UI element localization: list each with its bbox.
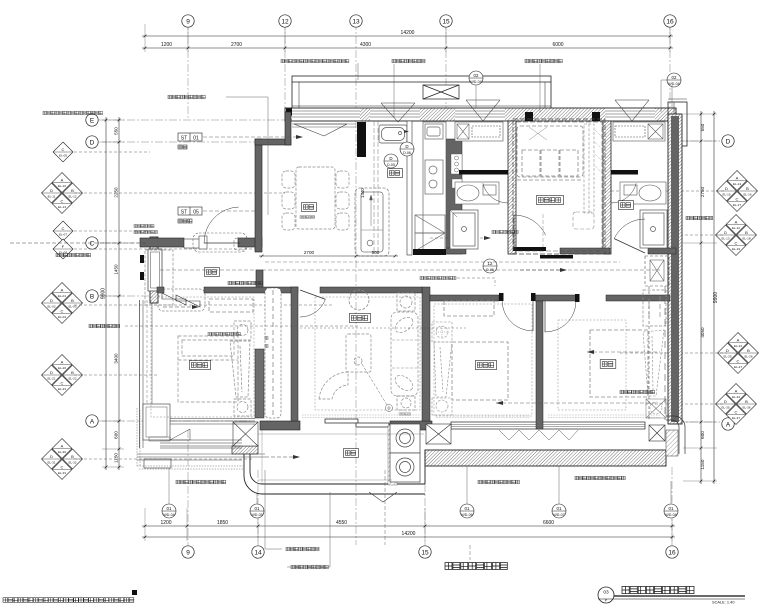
svg-text:4050: 4050 bbox=[700, 327, 705, 338]
svg-text:D: D bbox=[726, 348, 729, 353]
svg-text:01: 01 bbox=[167, 506, 172, 511]
svg-text:13: 13 bbox=[352, 18, 360, 25]
svg-text:EL-35: EL-35 bbox=[721, 405, 729, 409]
svg-text:C: C bbox=[735, 241, 738, 246]
svg-text:6600: 6600 bbox=[543, 520, 554, 526]
svg-text:14: 14 bbox=[254, 549, 262, 556]
svg-text:14200: 14200 bbox=[401, 30, 415, 36]
svg-text:EL-32: EL-32 bbox=[68, 460, 76, 464]
svg-text:C: C bbox=[737, 359, 740, 364]
svg-text:4300: 4300 bbox=[360, 42, 371, 48]
svg-text:EL-01: EL-01 bbox=[58, 294, 66, 298]
svg-text:A: A bbox=[726, 421, 731, 428]
svg-text:1200: 1200 bbox=[161, 42, 172, 48]
svg-text:15: 15 bbox=[421, 549, 429, 556]
svg-text:EL-22: EL-22 bbox=[68, 376, 76, 380]
svg-text:WD-04: WD-04 bbox=[668, 82, 679, 86]
svg-text:A: A bbox=[61, 288, 64, 293]
svg-text:2750: 2750 bbox=[700, 186, 705, 197]
svg-text:EL-34: EL-34 bbox=[732, 395, 740, 399]
svg-text:D: D bbox=[50, 370, 53, 375]
svg-text:550: 550 bbox=[700, 123, 705, 131]
svg-text:WD-04: WD-04 bbox=[163, 513, 174, 517]
svg-text:EL-11: EL-11 bbox=[48, 194, 56, 198]
svg-text:B: B bbox=[71, 370, 74, 375]
svg-text:EL-25: EL-25 bbox=[723, 354, 731, 358]
svg-text:ST: ST bbox=[181, 135, 187, 141]
svg-text:D: D bbox=[726, 138, 731, 145]
svg-text:600: 600 bbox=[700, 431, 705, 439]
svg-text:9: 9 bbox=[186, 18, 190, 25]
svg-text:B: B bbox=[745, 230, 748, 235]
svg-text:C: C bbox=[61, 381, 64, 386]
svg-text:EL-17: EL-17 bbox=[733, 203, 741, 207]
svg-text:EL-33: EL-33 bbox=[58, 471, 66, 475]
svg-text:2700: 2700 bbox=[304, 250, 315, 255]
svg-text:01: 01 bbox=[193, 135, 199, 141]
svg-text:EL-05: EL-05 bbox=[59, 153, 67, 157]
svg-text:01: 01 bbox=[669, 506, 674, 511]
svg-text:D: D bbox=[389, 156, 392, 161]
svg-text:B: B bbox=[90, 293, 94, 300]
svg-text:D: D bbox=[50, 188, 53, 193]
svg-text:EL-16: EL-16 bbox=[743, 192, 751, 196]
svg-text:E: E bbox=[90, 117, 95, 124]
svg-text:EL-19: EL-19 bbox=[732, 247, 740, 251]
svg-text:2250: 2250 bbox=[113, 187, 118, 198]
svg-text:C: C bbox=[61, 465, 64, 470]
svg-text:D: D bbox=[725, 186, 728, 191]
svg-text:C: C bbox=[61, 309, 64, 314]
svg-text:D-06: D-06 bbox=[403, 151, 411, 155]
svg-text:EL-13: EL-13 bbox=[721, 236, 729, 240]
svg-text:A: A bbox=[735, 220, 738, 225]
svg-text:EL-26: EL-26 bbox=[744, 354, 752, 358]
svg-text:01: 01 bbox=[557, 506, 562, 511]
svg-text:EL-15: EL-15 bbox=[722, 192, 730, 196]
svg-text:A: A bbox=[61, 444, 64, 449]
svg-text:P: P bbox=[605, 598, 608, 603]
svg-text:D: D bbox=[405, 144, 408, 149]
svg-text:ST: ST bbox=[181, 209, 187, 215]
svg-text:EL-12: EL-12 bbox=[68, 194, 76, 198]
svg-text:A: A bbox=[737, 338, 740, 343]
svg-text:D: D bbox=[50, 454, 53, 459]
svg-text:EL-12: EL-12 bbox=[732, 226, 740, 230]
svg-text:EL-36: EL-36 bbox=[742, 405, 750, 409]
svg-text:B: B bbox=[747, 348, 750, 353]
svg-text:12: 12 bbox=[488, 261, 493, 266]
svg-text:02: 02 bbox=[672, 75, 677, 80]
svg-text:WD-04: WD-04 bbox=[470, 80, 481, 84]
svg-text:05: 05 bbox=[193, 209, 199, 215]
svg-text:WD-05: WD-05 bbox=[251, 513, 262, 517]
svg-text:500: 500 bbox=[372, 250, 380, 255]
svg-text:EL-31: EL-31 bbox=[47, 460, 55, 464]
svg-text:EL-37: EL-37 bbox=[732, 416, 740, 420]
svg-text:EL-07: EL-07 bbox=[59, 232, 67, 236]
svg-text:1200: 1200 bbox=[160, 520, 171, 526]
svg-text:2700: 2700 bbox=[231, 42, 242, 48]
svg-text:EL-30: EL-30 bbox=[58, 450, 66, 454]
svg-text:WD-06: WD-06 bbox=[461, 513, 472, 517]
svg-text:EL-18: EL-18 bbox=[742, 236, 750, 240]
svg-text:1440: 1440 bbox=[360, 188, 365, 198]
svg-text:WD-07: WD-07 bbox=[553, 513, 564, 517]
svg-text:B: B bbox=[71, 298, 74, 303]
svg-text:1150: 1150 bbox=[700, 459, 705, 469]
svg-text:9: 9 bbox=[186, 549, 190, 556]
svg-text:03: 03 bbox=[603, 590, 609, 596]
svg-text:B: B bbox=[746, 186, 749, 191]
svg-text:14200: 14200 bbox=[402, 531, 416, 537]
svg-text:16: 16 bbox=[668, 549, 676, 556]
svg-text:D: D bbox=[90, 139, 95, 146]
svg-text:B: B bbox=[71, 188, 74, 193]
svg-text:12: 12 bbox=[281, 18, 289, 25]
svg-text:3400: 3400 bbox=[113, 353, 118, 364]
svg-text:EL-20: EL-20 bbox=[58, 366, 66, 370]
svg-text:4550: 4550 bbox=[336, 520, 347, 526]
svg-text:C: C bbox=[61, 199, 64, 204]
svg-text:C: C bbox=[90, 240, 95, 247]
svg-text:1150: 1150 bbox=[113, 453, 118, 463]
svg-text:B: B bbox=[71, 454, 74, 459]
svg-text:EL-02: EL-02 bbox=[47, 304, 55, 308]
svg-text:EL-23: EL-23 bbox=[58, 387, 66, 391]
svg-text:A: A bbox=[736, 176, 739, 181]
svg-text:EL-21: EL-21 bbox=[47, 376, 55, 380]
svg-text:A: A bbox=[61, 360, 64, 365]
svg-text:01: 01 bbox=[255, 506, 260, 511]
svg-text:EL-10: EL-10 bbox=[58, 184, 66, 188]
svg-text:15: 15 bbox=[442, 18, 450, 25]
svg-text:9900: 9900 bbox=[100, 288, 106, 299]
svg-text:6000: 6000 bbox=[552, 42, 563, 48]
svg-text:16: 16 bbox=[666, 18, 674, 25]
svg-text:WD-08: WD-08 bbox=[665, 513, 676, 517]
svg-text:9900: 9900 bbox=[713, 292, 719, 303]
svg-text:A: A bbox=[61, 178, 64, 183]
svg-text:550: 550 bbox=[113, 127, 118, 135]
svg-text:EL-14: EL-14 bbox=[733, 182, 741, 186]
svg-text:02: 02 bbox=[474, 73, 479, 78]
svg-text:EL-27: EL-27 bbox=[734, 365, 742, 369]
svg-text:D-05: D-05 bbox=[387, 163, 395, 167]
svg-text:A: A bbox=[735, 389, 738, 394]
svg-text:EL-13: EL-13 bbox=[58, 205, 66, 209]
svg-text:C: C bbox=[735, 410, 738, 415]
svg-text:EL-04: EL-04 bbox=[58, 315, 66, 319]
svg-text:B: B bbox=[745, 399, 748, 404]
svg-text:C: C bbox=[62, 226, 65, 231]
svg-text:D: D bbox=[724, 230, 727, 235]
svg-text:C: C bbox=[736, 197, 739, 202]
svg-text:01: 01 bbox=[465, 506, 470, 511]
svg-text:600: 600 bbox=[113, 431, 118, 439]
svg-text:C: C bbox=[62, 147, 65, 152]
svg-text:EL-24: EL-24 bbox=[734, 344, 742, 348]
svg-text:1850: 1850 bbox=[217, 520, 228, 526]
svg-text:D: D bbox=[724, 399, 727, 404]
svg-text:D: D bbox=[50, 298, 53, 303]
svg-text:SCALE: 1:40: SCALE: 1:40 bbox=[712, 600, 735, 605]
svg-text:A: A bbox=[90, 418, 95, 425]
svg-text:1450: 1450 bbox=[113, 264, 118, 275]
